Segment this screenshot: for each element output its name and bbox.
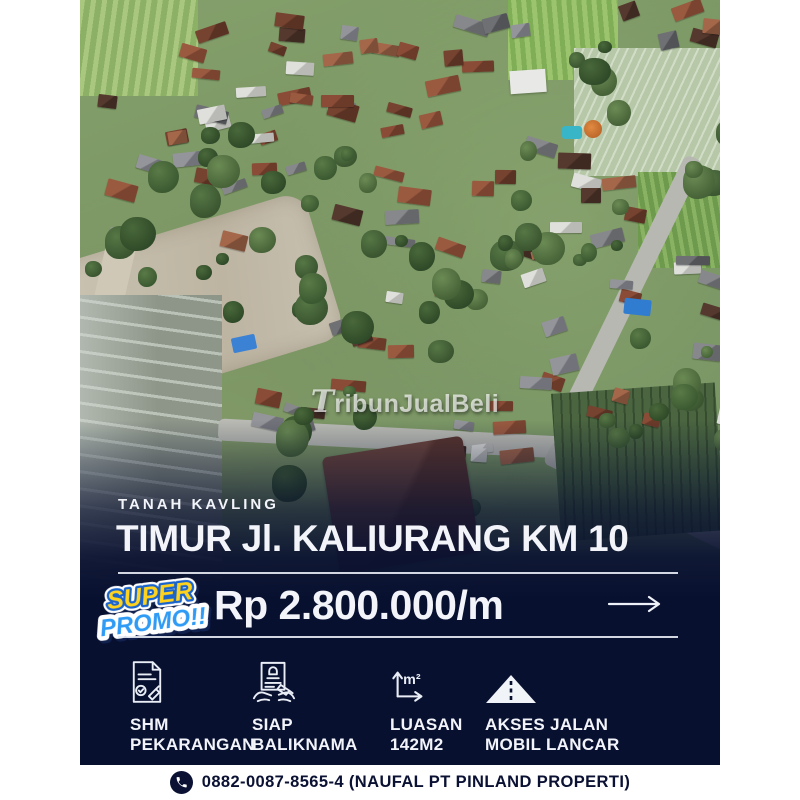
super-promo-badge: SUPER PROMO!! SUPER PROMO!! <box>88 573 215 654</box>
feature-label: AKSES JALAN <box>485 715 620 735</box>
contact-bar[interactable]: 0882-0087-8565-4 (NAUFAL PT PINLAND PROP… <box>0 765 800 800</box>
road-access-icon <box>485 656 620 704</box>
svg-text:m²: m² <box>403 672 421 688</box>
feature-luasan: m² LUASAN 142M2 <box>390 656 463 755</box>
feature-label: SHM <box>130 715 255 735</box>
divider <box>118 636 678 638</box>
arrow-right-icon[interactable] <box>606 594 664 614</box>
balik-nama-certificate-icon <box>252 656 358 704</box>
page-title: TIMUR Jl. KALIURANG KM 10 <box>116 518 629 560</box>
kicker-label: TANAH KAVLING <box>118 496 279 513</box>
phone-icon <box>170 771 193 794</box>
price-text: Rp 2.800.000/m <box>214 582 503 629</box>
contact-phone-text: 0882-0087-8565-4 (NAUFAL PT PINLAND PROP… <box>202 773 630 792</box>
poster-canvas: TribunJualBeli TANAH KAVLING TIMUR Jl. K… <box>0 0 800 800</box>
feature-label: BALIKNAMA <box>252 735 358 755</box>
feature-label: 142M2 <box>390 735 463 755</box>
feature-label: SIAP <box>252 715 358 735</box>
feature-label: LUASAN <box>390 715 463 735</box>
feature-balik-nama: SIAP BALIKNAMA <box>252 656 358 755</box>
feature-akses-jalan: AKSES JALAN MOBIL LANCAR <box>485 656 620 755</box>
feature-label: MOBIL LANCAR <box>485 735 620 755</box>
property-ad-poster: TribunJualBeli TANAH KAVLING TIMUR Jl. K… <box>80 0 720 800</box>
area-m2-icon: m² <box>390 656 463 704</box>
info-overlay: TANAH KAVLING TIMUR Jl. KALIURANG KM 10 … <box>80 0 720 765</box>
feature-label: PEKARANGAN <box>130 735 255 755</box>
feature-shm: SHM PEKARANGAN <box>130 656 255 755</box>
shm-document-icon <box>130 656 255 704</box>
